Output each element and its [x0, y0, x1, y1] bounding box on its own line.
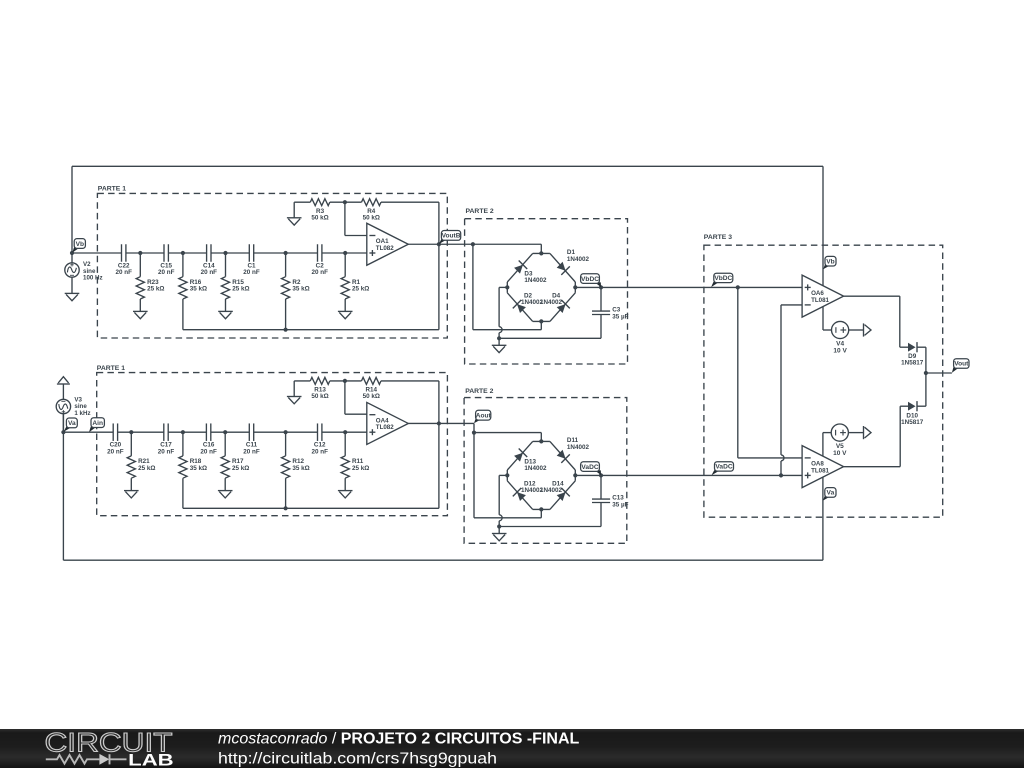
svg-text:VaDC: VaDC — [581, 464, 598, 471]
svg-text:20 nF: 20 nF — [311, 269, 328, 276]
svg-text:20 nF: 20 nF — [201, 269, 218, 276]
svg-text:VbDC: VbDC — [581, 276, 599, 283]
svg-text:35 kΩ: 35 kΩ — [292, 286, 309, 293]
svg-text:PARTE 1: PARTE 1 — [97, 365, 125, 372]
svg-text:20 nF: 20 nF — [115, 269, 132, 276]
svg-text:1N4002: 1N4002 — [540, 299, 563, 306]
svg-text:10 V: 10 V — [833, 347, 847, 354]
svg-text:TL081: TL081 — [811, 297, 829, 304]
svg-text:Vout: Vout — [954, 361, 969, 368]
svg-text:1N4002: 1N4002 — [524, 277, 547, 284]
svg-text:TL082: TL082 — [376, 424, 394, 431]
svg-text:20 nF: 20 nF — [243, 269, 260, 276]
svg-text:1N5817: 1N5817 — [901, 419, 924, 426]
svg-text:PARTE 3: PARTE 3 — [704, 234, 732, 241]
svg-text:50 kΩ: 50 kΩ — [311, 215, 328, 222]
svg-text:20 nF: 20 nF — [311, 448, 328, 455]
svg-text:50 kΩ: 50 kΩ — [311, 393, 328, 400]
svg-text:LAB: LAB — [128, 752, 174, 768]
svg-text:PARTE 1: PARTE 1 — [98, 186, 126, 193]
svg-text:TL081: TL081 — [811, 467, 829, 474]
svg-text:25 kΩ: 25 kΩ — [138, 465, 155, 472]
svg-text:Ain: Ain — [92, 420, 103, 427]
svg-text:Vb: Vb — [76, 241, 84, 248]
svg-text:VbDC: VbDC — [714, 275, 732, 282]
svg-text:35 kΩ: 35 kΩ — [190, 286, 207, 293]
svg-text:25 kΩ: 25 kΩ — [352, 286, 369, 293]
svg-text:10 V: 10 V — [833, 450, 847, 457]
svg-text:1 kHz: 1 kHz — [74, 410, 90, 417]
svg-text:20 nF: 20 nF — [158, 269, 175, 276]
svg-text:50 kΩ: 50 kΩ — [363, 393, 380, 400]
svg-text:VoutB: VoutB — [442, 233, 461, 240]
svg-text:20 nF: 20 nF — [200, 448, 217, 455]
svg-text:PARTE 2: PARTE 2 — [465, 388, 493, 395]
svg-text:Va: Va — [827, 490, 835, 497]
svg-text:35 kΩ: 35 kΩ — [190, 465, 207, 472]
svg-text:20 nF: 20 nF — [107, 448, 124, 455]
svg-text:1N4002: 1N4002 — [567, 444, 590, 451]
svg-text:1N4002: 1N4002 — [540, 487, 563, 494]
svg-text:mcostaconrado / PROJETO 2 CIRC: mcostaconrado / PROJETO 2 CIRCUITOS -FIN… — [218, 731, 580, 748]
svg-text:VaDC: VaDC — [715, 464, 732, 471]
svg-text:35 µF: 35 µF — [612, 314, 628, 321]
svg-text:25 kΩ: 25 kΩ — [147, 286, 164, 293]
svg-text:PARTE 2: PARTE 2 — [466, 208, 494, 215]
svg-text:100 Hz: 100 Hz — [83, 274, 103, 281]
svg-text:20 nF: 20 nF — [243, 448, 260, 455]
svg-text:20 nF: 20 nF — [158, 448, 175, 455]
svg-text:TL082: TL082 — [376, 245, 394, 252]
svg-text:25 kΩ: 25 kΩ — [352, 465, 369, 472]
svg-text:Va: Va — [68, 420, 76, 427]
svg-text:1N4002: 1N4002 — [524, 465, 547, 472]
svg-text:Vb: Vb — [826, 258, 834, 265]
svg-text:1N5817: 1N5817 — [901, 360, 924, 367]
svg-text:35 kΩ: 35 kΩ — [292, 465, 309, 472]
svg-text:35 µF: 35 µF — [612, 502, 628, 509]
svg-text:1N4002: 1N4002 — [567, 256, 590, 263]
svg-text:25 kΩ: 25 kΩ — [232, 286, 249, 293]
svg-text:25 kΩ: 25 kΩ — [232, 465, 249, 472]
svg-text:Aout: Aout — [476, 413, 492, 420]
svg-text:50 kΩ: 50 kΩ — [363, 215, 380, 222]
svg-text:http://circuitlab.com/crs7hsg9: http://circuitlab.com/crs7hsg9gpuah — [218, 751, 497, 768]
